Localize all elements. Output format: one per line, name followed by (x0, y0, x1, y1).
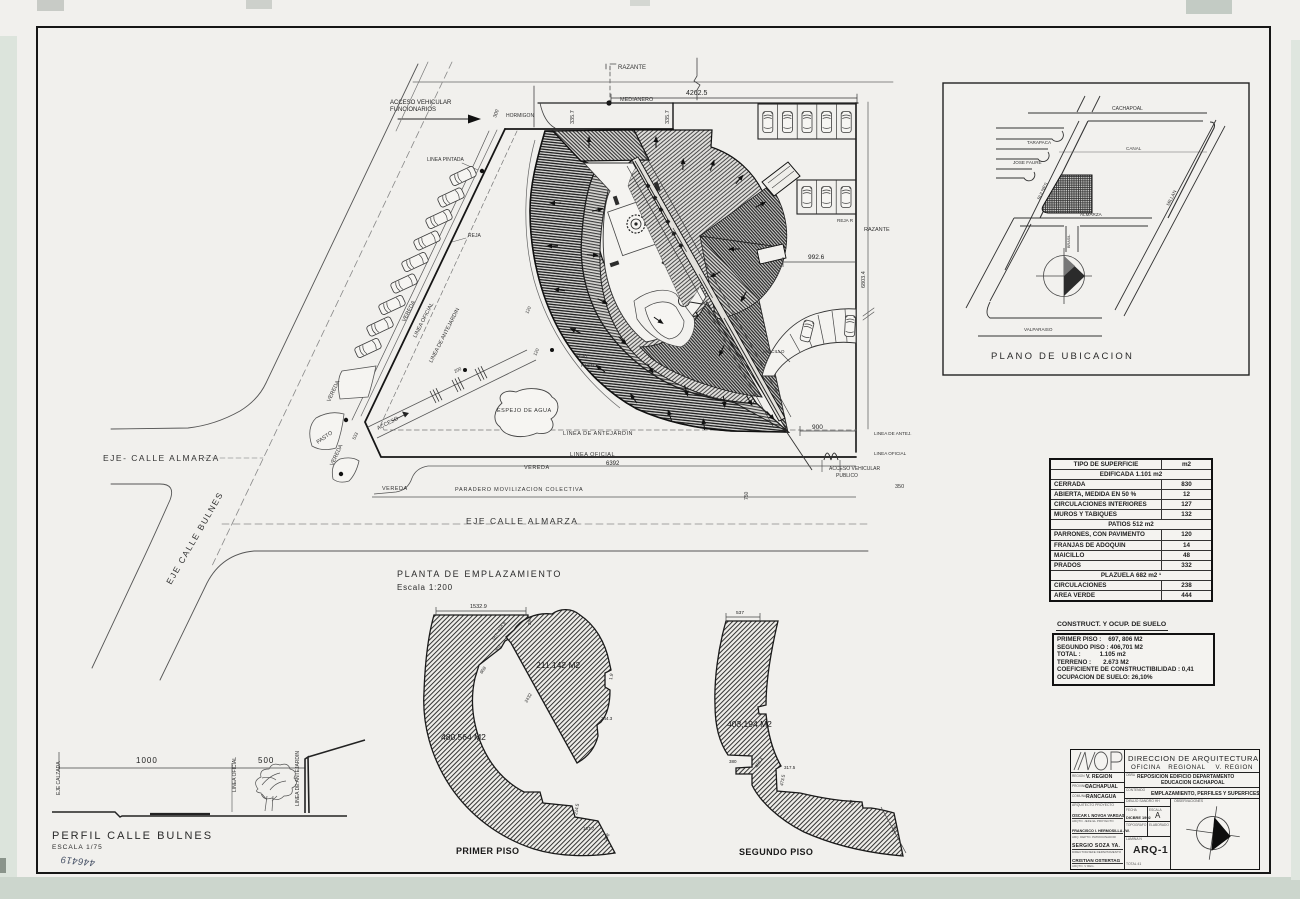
svg-text:244.3: 244.3 (601, 716, 613, 721)
svg-text:LINEA OFICIAL: LINEA OFICIAL (412, 302, 435, 339)
svg-text:PARADERO MOVILIZACION COLECT: PARADERO MOVILIZACION COLECTIVA (455, 487, 584, 493)
svg-text:RAZANTE: RAZANTE (864, 227, 890, 233)
svg-text:ACCESO: ACCESO (376, 416, 400, 432)
svg-text:MAICILLO: MAICILLO (763, 349, 785, 354)
svg-text:900: 900 (812, 424, 823, 431)
svg-text:LINEA OFICIAL: LINEA OFICIAL (232, 757, 238, 792)
svg-text:120: 120 (524, 305, 532, 314)
svg-text:Escala 1:200: Escala 1:200 (397, 583, 453, 592)
svg-text:EJE CALLE ALMARZA: EJE CALLE ALMARZA (466, 516, 578, 526)
svg-text:RAZANTE: RAZANTE (618, 65, 646, 71)
svg-text:403,194 M2: 403,194 M2 (727, 719, 772, 729)
svg-text:335.7: 335.7 (570, 110, 576, 124)
svg-text:VALPARAISO: VALPARAISO (1024, 327, 1053, 332)
svg-text:533: 533 (351, 431, 359, 440)
svg-text:ACCESO VEHICULAR: ACCESO VEHICULAR (829, 466, 881, 472)
svg-text:750: 750 (744, 491, 750, 500)
svg-text:446419: 446419 (60, 853, 96, 868)
svg-text:REJA R: REJA R (837, 218, 854, 223)
svg-text:6803.4: 6803.4 (861, 271, 867, 288)
svg-text:167.7: 167.7 (583, 826, 595, 831)
svg-text:HORMIGON: HORMIGON (506, 113, 534, 119)
svg-text:LINEA OFICIAL: LINEA OFICIAL (570, 452, 615, 458)
svg-text:380: 380 (729, 759, 737, 764)
svg-text:1000: 1000 (136, 756, 158, 765)
svg-text:VEREDA: VEREDA (382, 486, 408, 492)
svg-text:LINEA DE ANTEJARDIN: LINEA DE ANTEJARDIN (563, 431, 633, 437)
svg-text:LINEA DE ANTEJARDIN: LINEA DE ANTEJARDIN (295, 751, 301, 806)
svg-text:500: 500 (258, 756, 274, 765)
svg-text:CANAL: CANAL (1126, 146, 1142, 151)
svg-text:29.4: 29.4 (527, 616, 532, 625)
svg-text:200: 200 (453, 366, 462, 374)
svg-text:214.5: 214.5 (573, 803, 580, 815)
svg-text:PUBLICO: PUBLICO (836, 473, 858, 479)
svg-text:LINEA DE ANTEJARDIN: LINEA DE ANTEJARDIN (428, 307, 461, 364)
svg-text:BRASIL: BRASIL (1067, 234, 1071, 248)
svg-text:350: 350 (895, 484, 904, 490)
svg-text:EJE- CALLE ALMARZA: EJE- CALLE ALMARZA (103, 453, 220, 463)
svg-text:PLANTA DE EMPLAZAMIENTO: PLANTA DE EMPLAZAMIENTO (397, 569, 562, 579)
svg-text:VEREDA: VEREDA (524, 465, 550, 471)
svg-text:LINEA DE ANTEJ.: LINEA DE ANTEJ. (874, 431, 912, 436)
svg-text:317.5: 317.5 (784, 765, 796, 770)
svg-text:537: 537 (736, 610, 744, 616)
svg-text:4262.5: 4262.5 (686, 90, 708, 97)
svg-text:EJE CALLE BULNES: EJE CALLE BULNES (164, 490, 225, 586)
svg-text:473.5: 473.5 (779, 774, 786, 786)
svg-text:ESCALA 1/75: ESCALA 1/75 (52, 844, 103, 851)
svg-text:REJA: REJA (575, 353, 588, 359)
svg-text:PLANO DE UBICACION: PLANO DE UBICACION (991, 351, 1134, 362)
svg-text:PASTO: PASTO (581, 363, 597, 369)
svg-text:480.564 M2: 480.564 M2 (441, 732, 486, 742)
svg-text:300: 300 (492, 109, 501, 119)
svg-text:120: 120 (532, 347, 540, 356)
svg-text:CACHAPOAL: CACHAPOAL (1112, 106, 1143, 112)
svg-text:LINEA PINTADA: LINEA PINTADA (427, 157, 465, 163)
svg-text:JOSE FAURE: JOSE FAURE (1013, 160, 1042, 165)
svg-text:TARAPACA: TARAPACA (1027, 140, 1052, 145)
svg-text:PRIMER PISO: PRIMER PISO (456, 846, 519, 856)
svg-text:1532.9: 1532.9 (470, 604, 487, 610)
svg-text:1.9: 1.9 (608, 673, 614, 681)
svg-text:335.7: 335.7 (665, 110, 671, 124)
svg-text:SEGUNDO PISO: SEGUNDO PISO (739, 847, 813, 857)
svg-text:ESPEJO DE AGUA: ESPEJO DE AGUA (497, 408, 552, 414)
svg-text:PERFIL CALLE BULNES: PERFIL CALLE BULNES (52, 830, 213, 842)
svg-text:MEDIANERO: MEDIANERO (620, 97, 654, 103)
svg-text:608: 608 (479, 665, 488, 674)
svg-text:2432: 2432 (524, 692, 534, 704)
svg-text:992.6: 992.6 (808, 254, 825, 261)
svg-text:ALMARZA: ALMARZA (1080, 212, 1103, 217)
svg-text:LINEA OFICIAL: LINEA OFICIAL (874, 451, 907, 456)
svg-text:211.142 M2: 211.142 M2 (536, 660, 581, 670)
svg-text:REJA: REJA (468, 233, 481, 239)
